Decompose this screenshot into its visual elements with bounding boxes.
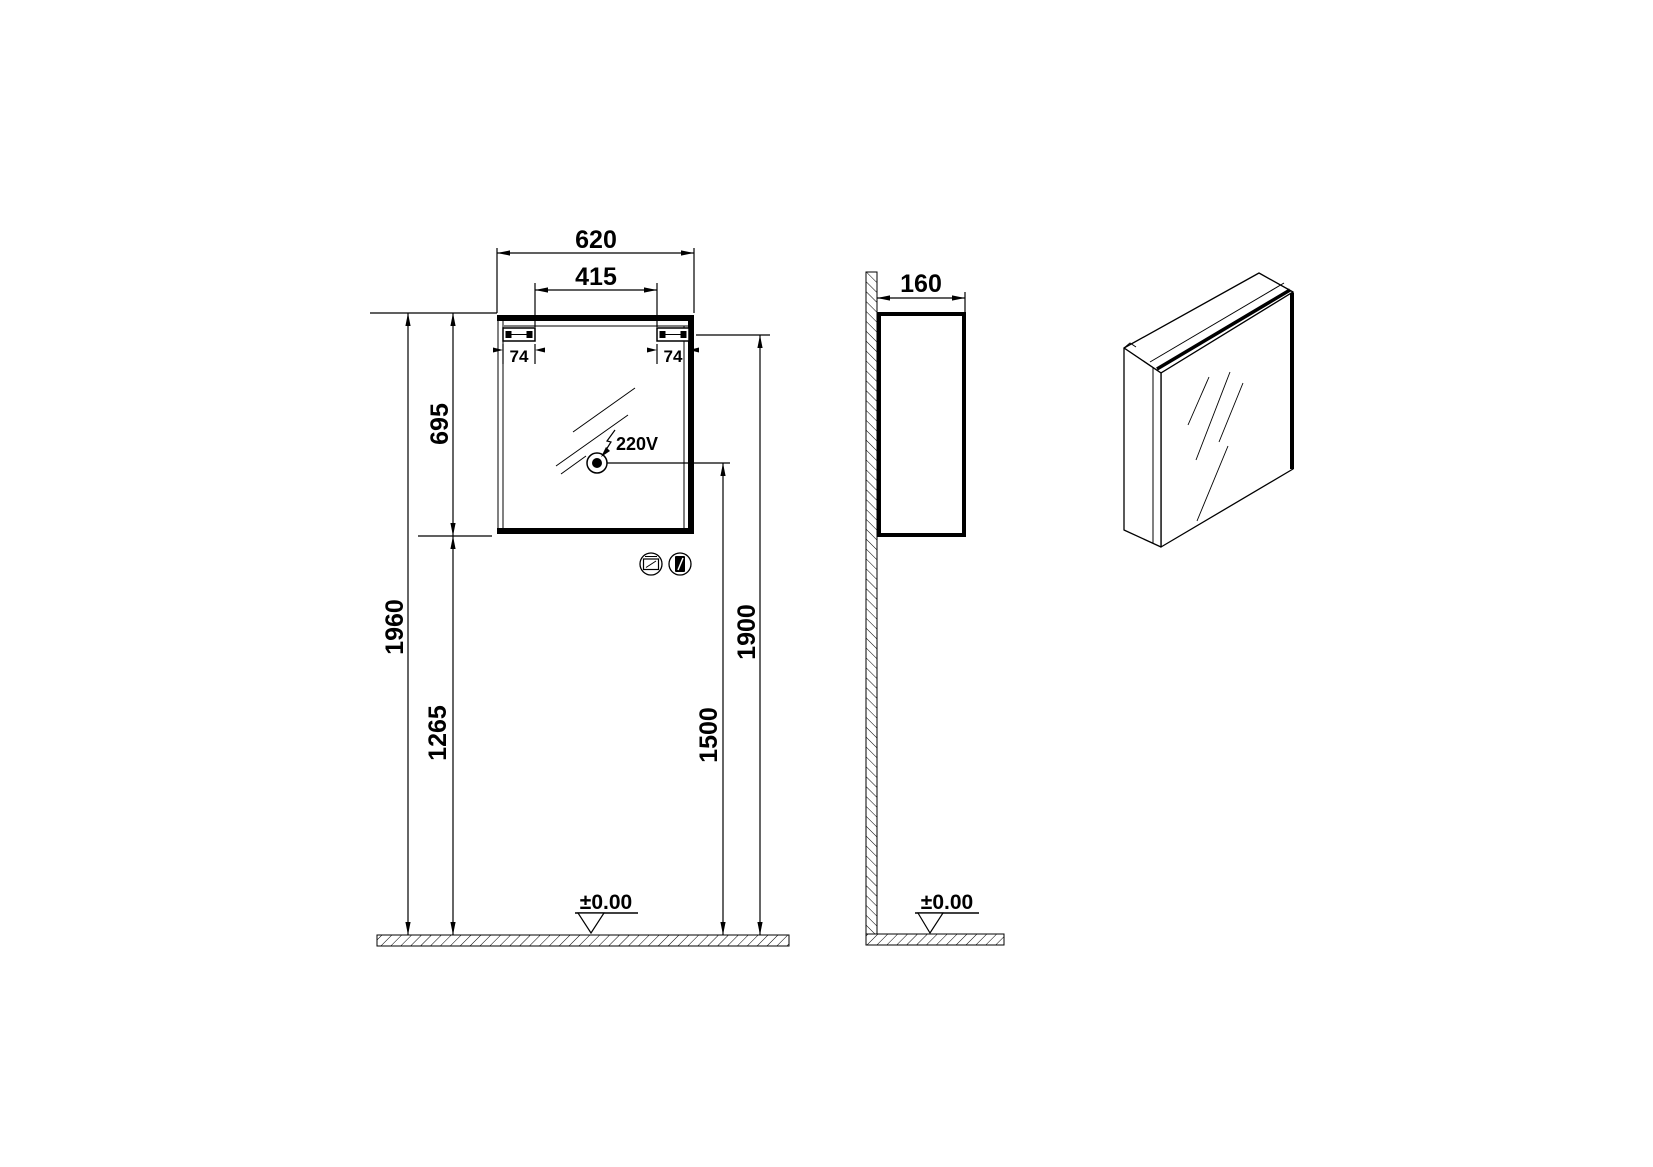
socket-voltage-label: 220V — [616, 434, 658, 454]
side-floor-level-label: ±0.00 — [921, 891, 973, 914]
dim-hinge-left-label: 74 — [510, 347, 529, 366]
side-floor-level-marker: ±0.00 — [915, 891, 979, 933]
dim-depth-label: 160 — [900, 270, 942, 298]
lightning-arrowhead-icon — [601, 447, 610, 457]
dim-160: 160 — [877, 270, 965, 312]
front-floor-level-label: ±0.00 — [580, 891, 632, 914]
technical-drawing-sheet: 620 415 74 74 — [0, 0, 1653, 1167]
dim-mirror-width-label: 415 — [575, 263, 617, 291]
level-triangle-icon — [918, 913, 943, 933]
socket-point — [592, 458, 602, 468]
dim-cabinet-height-label: 695 — [426, 403, 454, 445]
level-triangle-icon — [578, 913, 604, 933]
dim-floor-to-mounting-rail-label: 1900 — [733, 604, 761, 660]
mounting-bracket-right — [657, 328, 689, 341]
dim-vertical-left: 1960 695 1265 — [370, 313, 497, 935]
front-view: 620 415 74 74 — [370, 226, 789, 946]
mirror-cabinet-dimension-drawing: 620 415 74 74 — [0, 0, 1653, 1167]
iso-left-face — [1124, 348, 1161, 547]
side-floor-section — [866, 934, 1004, 945]
side-cabinet-outline — [879, 314, 964, 535]
dim-width-label: 620 — [575, 226, 617, 254]
feature-icons — [640, 553, 691, 575]
dim-74-left: 74 — [493, 344, 545, 366]
dim-hinge-right-label: 74 — [664, 347, 683, 366]
dim-total-height-label: 1960 — [381, 599, 409, 655]
door-feature-icon — [669, 553, 691, 575]
side-view: 160 ±0.00 — [866, 270, 1004, 945]
mirror-cabinet-feature-icon — [640, 553, 662, 575]
wall-section — [866, 272, 877, 934]
dim-floor-to-socket-label: 1500 — [695, 707, 723, 763]
cabinet-top-edge — [497, 315, 694, 321]
mounting-bracket-left — [503, 328, 535, 341]
isometric-view — [1124, 273, 1293, 547]
dim-floor-to-cabinet-bottom-label: 1265 — [424, 705, 452, 761]
cabinet-bottom-edge — [497, 528, 694, 534]
front-floor-level-marker: ±0.00 — [575, 891, 638, 933]
front-floor-section — [377, 935, 789, 946]
